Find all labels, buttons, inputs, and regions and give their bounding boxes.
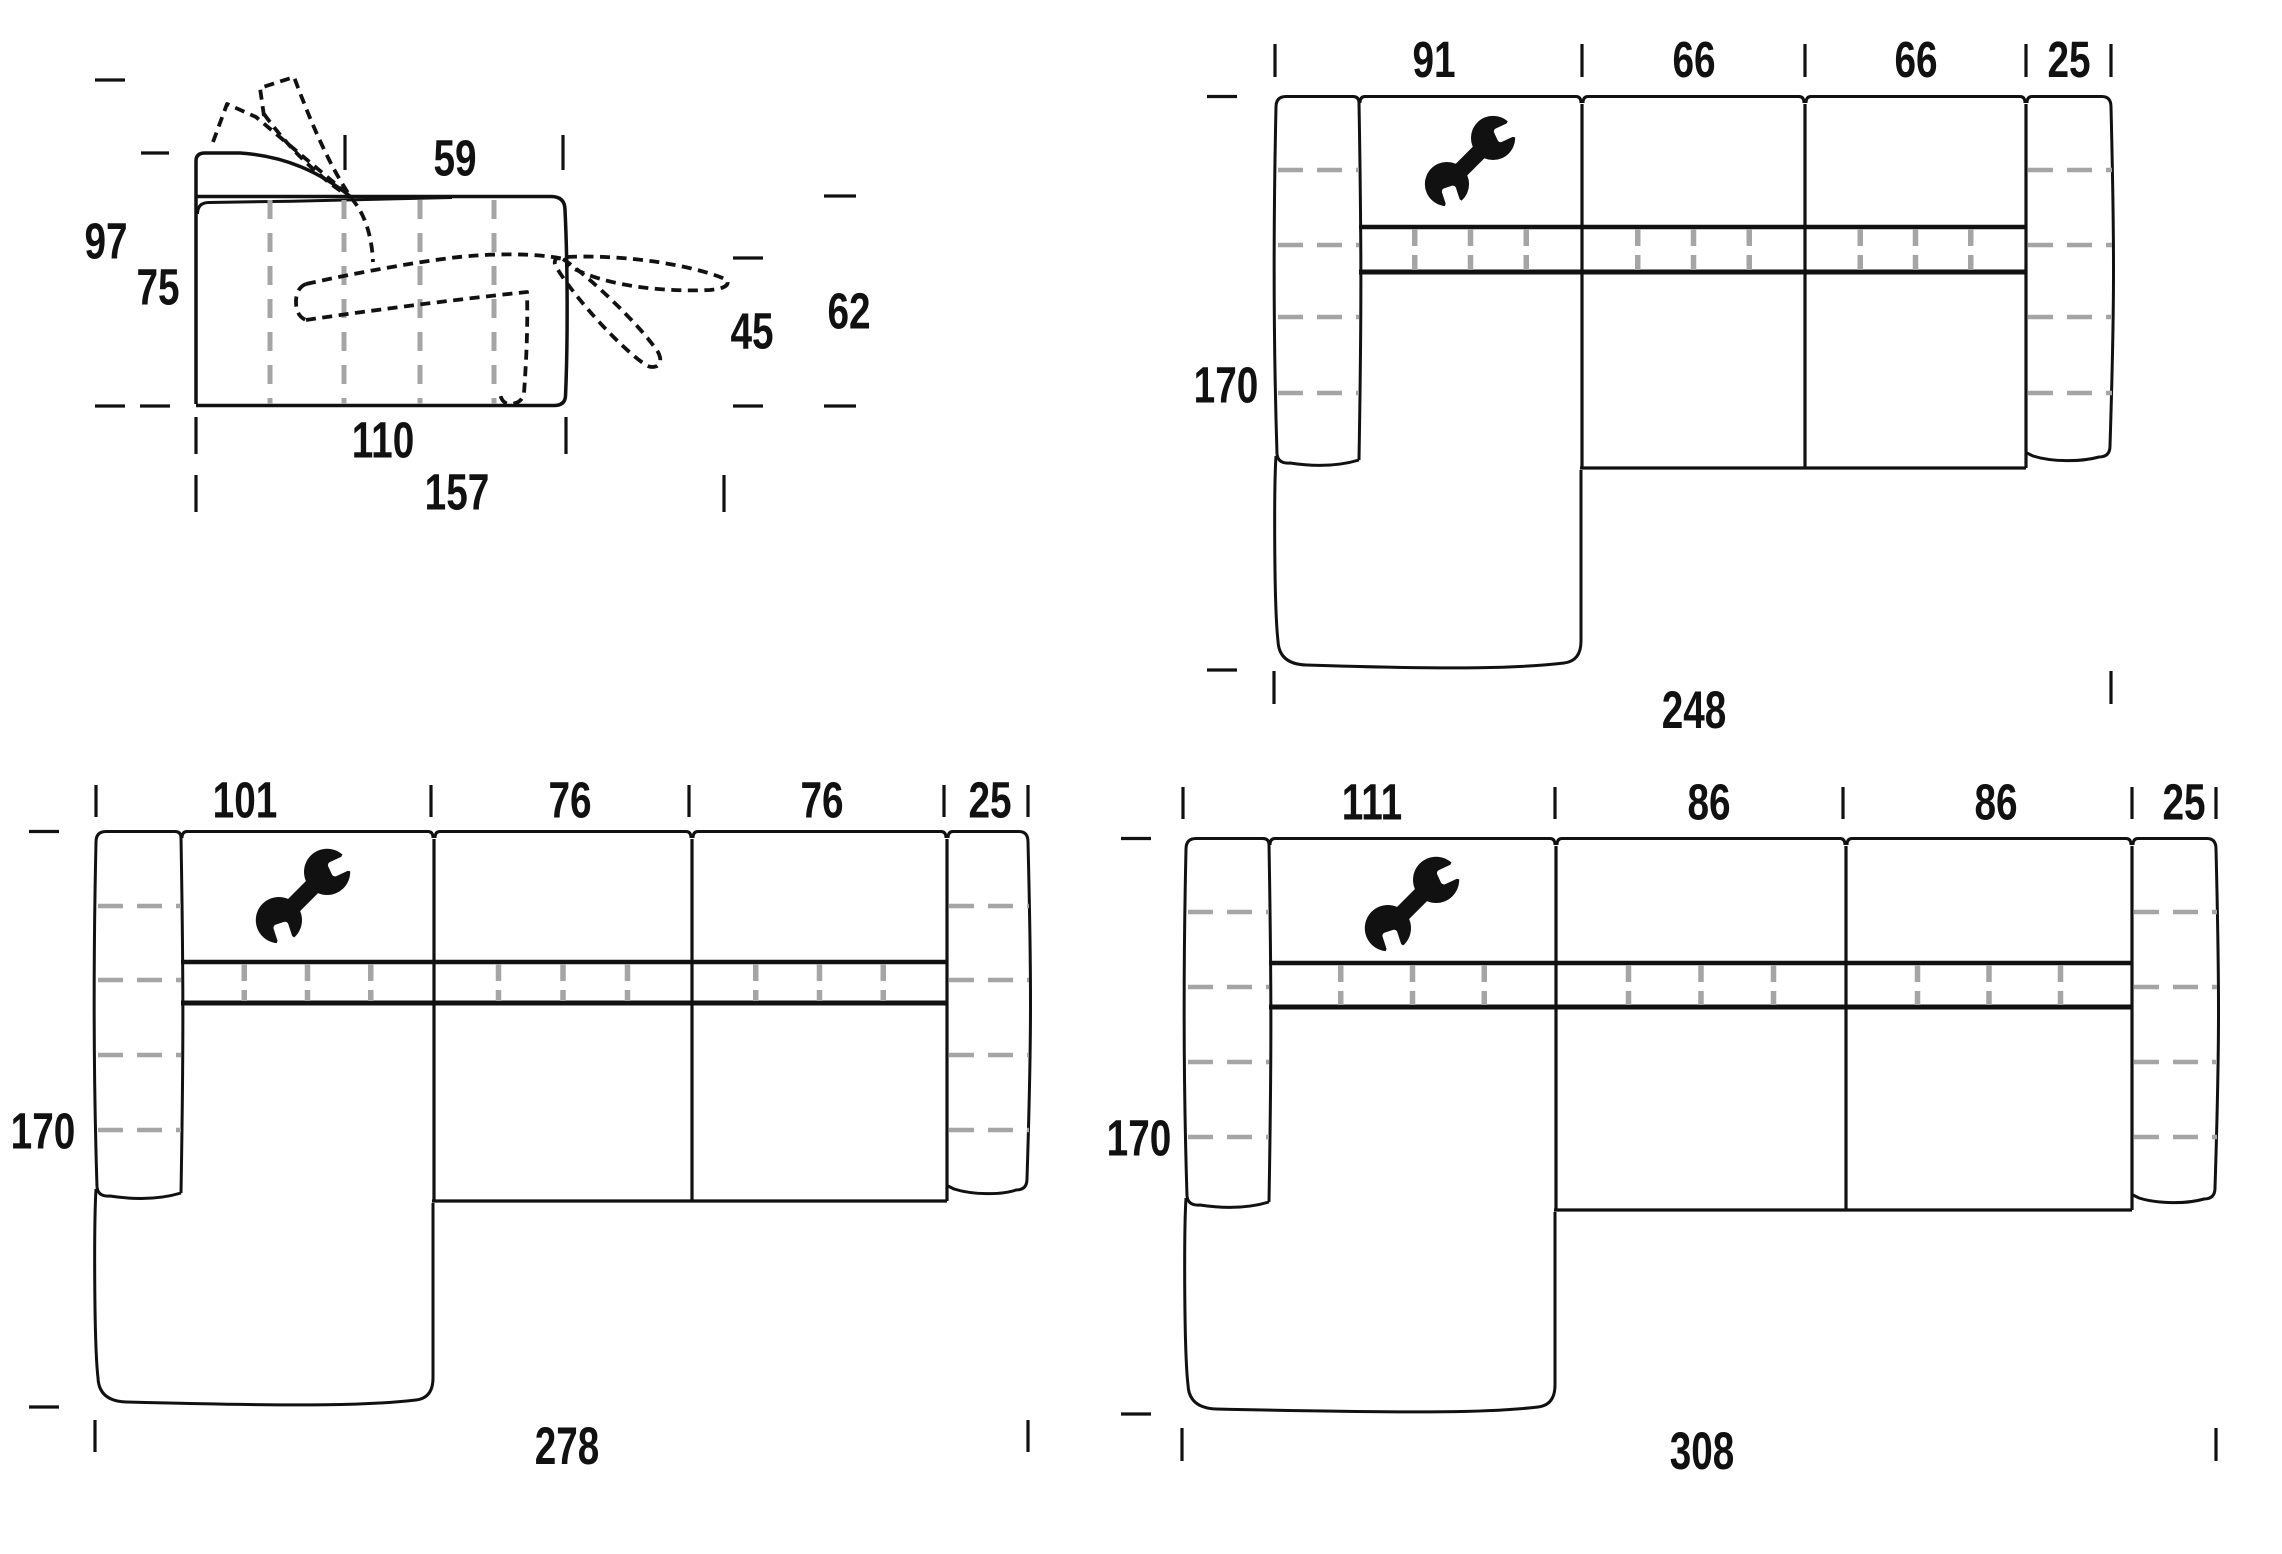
svg-text:45: 45 bbox=[730, 302, 773, 359]
svg-text:170: 170 bbox=[11, 1102, 76, 1159]
svg-text:25: 25 bbox=[968, 771, 1011, 828]
svg-text:76: 76 bbox=[800, 771, 843, 828]
svg-text:25: 25 bbox=[2162, 773, 2205, 830]
svg-text:66: 66 bbox=[1894, 31, 1937, 88]
svg-text:66: 66 bbox=[1672, 31, 1715, 88]
svg-text:91: 91 bbox=[1412, 31, 1455, 88]
svg-text:308: 308 bbox=[1670, 1421, 1735, 1480]
svg-text:75: 75 bbox=[136, 258, 179, 315]
svg-text:278: 278 bbox=[535, 1416, 600, 1475]
svg-text:248: 248 bbox=[1662, 680, 1727, 739]
svg-text:62: 62 bbox=[827, 282, 870, 339]
svg-text:110: 110 bbox=[352, 411, 415, 468]
svg-text:97: 97 bbox=[84, 212, 127, 269]
svg-text:101: 101 bbox=[213, 771, 278, 828]
svg-text:157: 157 bbox=[425, 463, 490, 520]
svg-text:59: 59 bbox=[433, 129, 476, 186]
svg-text:86: 86 bbox=[1974, 773, 2017, 830]
svg-text:86: 86 bbox=[1687, 773, 1730, 830]
svg-text:170: 170 bbox=[1194, 356, 1259, 413]
svg-text:76: 76 bbox=[548, 771, 591, 828]
svg-text:111: 111 bbox=[1342, 773, 1402, 830]
svg-text:25: 25 bbox=[2047, 31, 2090, 88]
svg-text:170: 170 bbox=[1107, 1109, 1172, 1166]
